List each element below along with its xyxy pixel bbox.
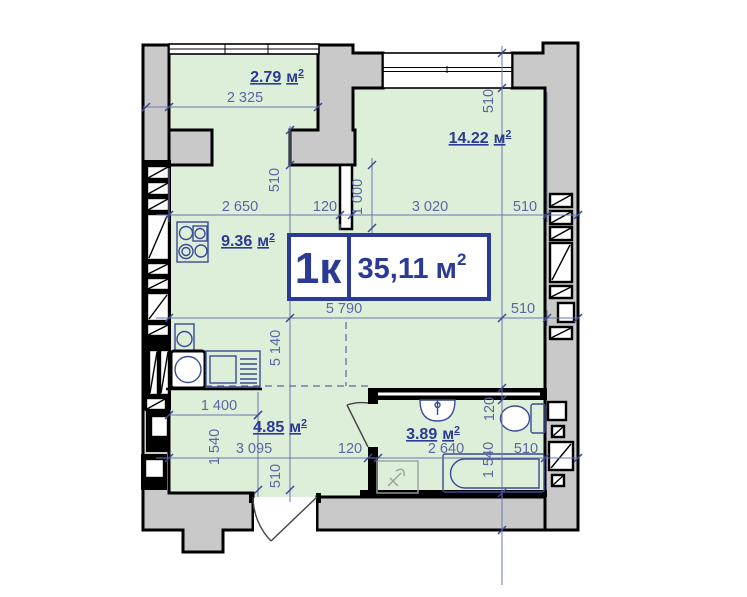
dim-partition-length: 1 000 [350,179,366,215]
wall-niche [145,459,164,478]
title-block: 1к 35,11м2 [289,235,489,299]
bathroom-area-label: 3.89м2 [406,424,460,443]
dim-kitchen-height: 5 140 [268,330,284,366]
right-wall-vents [548,194,574,486]
balcony-divider-left-block [169,130,212,165]
dim-entry-wall: 510 [268,464,284,488]
dim-total-width: 5 790 [326,301,362,317]
balcony-area-label: 2.79м2 [250,67,304,86]
dim-bath-width: 2 640 [428,441,464,457]
dim-hall-top-width: 1 400 [201,398,237,414]
floor-plan-drawing: 2 325 2 650 120 3 020 510 5 790 510 1 40… [0,0,747,597]
bottom-right-wall [317,497,545,530]
dim-right-wall: 510 [513,199,537,215]
dim-right-wall-mid: 510 [511,301,535,317]
kitchen-area-label: 9.36м2 [221,231,275,250]
wall-niche [558,303,574,322]
dim-balcony-width: 2 325 [227,90,263,106]
dim-window-wall: 510 [481,89,497,113]
living-area-label: 14.22м2 [449,128,512,147]
floor-plan-page: 2 325 2 650 120 3 020 510 5 790 510 1 40… [0,0,747,597]
bathroom-left-wall-stub [368,388,378,404]
dim-kitchen-width: 2 650 [222,199,258,215]
dim-living-width: 3 020 [412,199,448,215]
hall-area-label: 4.85м2 [253,417,307,436]
dim-bath-wall: 120 [338,441,362,457]
wall-niche [548,402,566,420]
apartment-area-label: 35,11м2 [358,250,467,285]
dim-partition-thickness: 120 [313,199,337,215]
dim-bath-wall-top: 120 [482,397,498,421]
apartment-type-label: 1к [295,244,342,293]
dim-hall-left-height: 1 540 [207,429,223,465]
dim-bath-height: 1 540 [481,442,497,478]
dim-balcony-wall: 510 [267,168,283,192]
dim-right-wall-bottom: 510 [514,441,538,457]
dim-hall-width: 3 095 [236,441,272,457]
balcony-doorway [212,128,290,168]
